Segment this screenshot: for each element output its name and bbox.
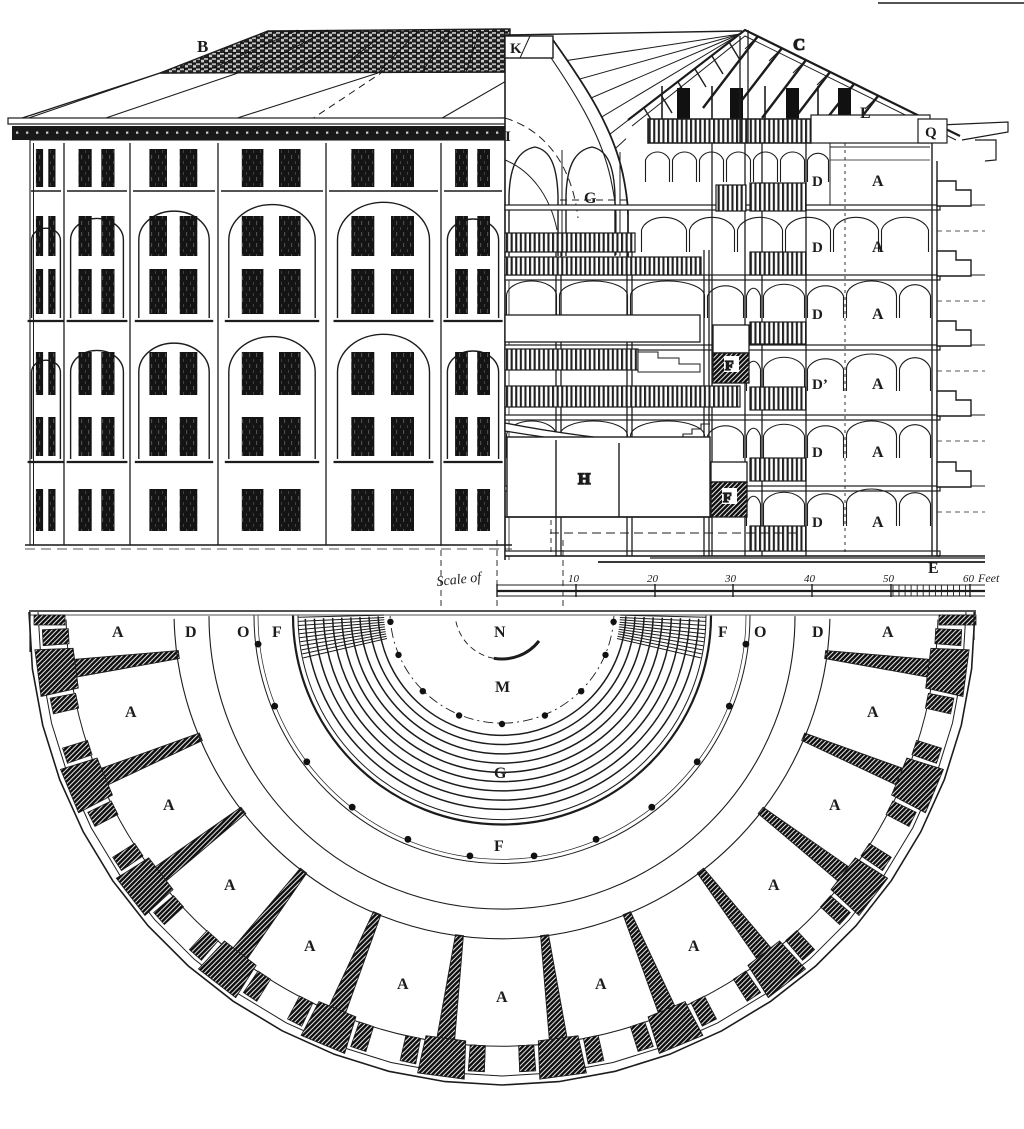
svg-text:O: O xyxy=(754,624,766,641)
svg-text:A: A xyxy=(872,173,884,190)
svg-text:A: A xyxy=(872,444,884,461)
svg-text:A: A xyxy=(112,624,124,641)
svg-text:A: A xyxy=(872,239,884,256)
svg-text:F: F xyxy=(494,838,504,855)
svg-text:A: A xyxy=(867,704,879,721)
svg-text:D: D xyxy=(812,307,823,323)
svg-text:20: 20 xyxy=(647,573,659,585)
svg-text:E: E xyxy=(928,560,939,577)
svg-text:A: A xyxy=(224,877,236,894)
svg-text:A: A xyxy=(829,797,841,814)
svg-text:D’: D’ xyxy=(812,377,828,393)
svg-text:F: F xyxy=(718,624,728,641)
svg-text:A: A xyxy=(872,306,884,323)
svg-text:50: 50 xyxy=(883,573,895,585)
svg-text:M: M xyxy=(495,679,510,696)
svg-text:C: C xyxy=(793,35,805,54)
svg-text:A: A xyxy=(768,877,780,894)
svg-text:D: D xyxy=(812,445,823,461)
svg-text:I: I xyxy=(505,129,511,145)
svg-text:A: A xyxy=(688,938,700,955)
svg-text:D: D xyxy=(812,240,823,256)
svg-text:A: A xyxy=(872,514,884,531)
svg-text:H: H xyxy=(578,471,591,488)
svg-text:L: L xyxy=(860,105,871,122)
svg-text:Feet: Feet xyxy=(977,571,1000,585)
svg-text:D: D xyxy=(185,624,197,641)
svg-text:G: G xyxy=(494,765,507,782)
svg-text:A: A xyxy=(304,938,316,955)
svg-text:F: F xyxy=(725,359,734,374)
svg-text:A: A xyxy=(163,797,175,814)
svg-text:K: K xyxy=(510,41,522,57)
svg-text:D: D xyxy=(812,624,824,641)
svg-text:A: A xyxy=(882,624,894,641)
svg-text:A: A xyxy=(125,704,137,721)
svg-text:F: F xyxy=(272,624,282,641)
svg-text:F: F xyxy=(723,491,732,506)
svg-text:N: N xyxy=(494,624,506,641)
svg-text:D: D xyxy=(812,515,823,531)
svg-text:A: A xyxy=(595,976,607,993)
svg-text:Q: Q xyxy=(925,125,937,141)
svg-text:10: 10 xyxy=(568,573,580,585)
svg-text:60: 60 xyxy=(963,573,975,585)
svg-text:D: D xyxy=(812,174,823,190)
svg-text:B: B xyxy=(197,37,208,56)
svg-text:40: 40 xyxy=(804,573,816,585)
svg-text:30: 30 xyxy=(724,573,737,585)
svg-text:A: A xyxy=(872,376,884,393)
svg-text:A: A xyxy=(496,989,508,1006)
svg-text:A: A xyxy=(397,976,409,993)
svg-text:O: O xyxy=(237,624,249,641)
